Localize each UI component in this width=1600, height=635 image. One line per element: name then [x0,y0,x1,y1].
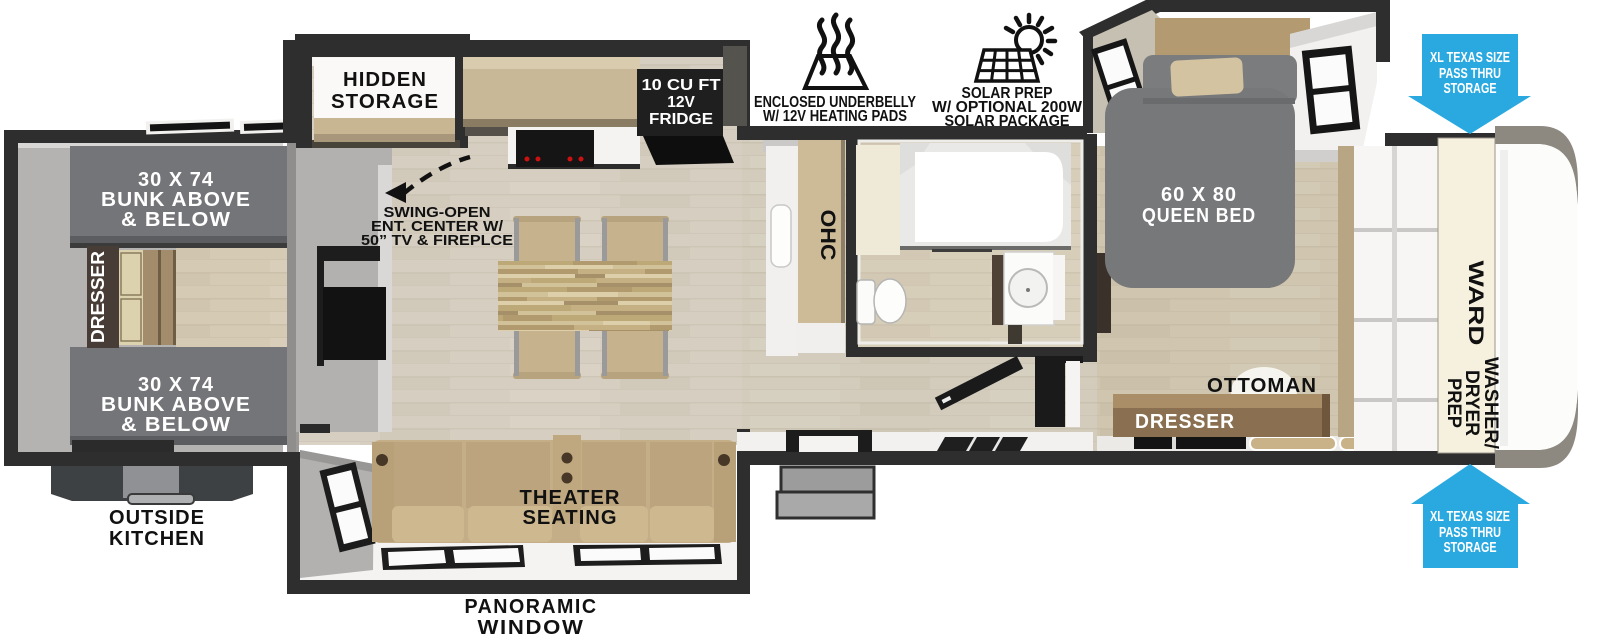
svg-text:30 X 74: 30 X 74 [138,374,214,396]
svg-text:OTTOMAN: OTTOMAN [1207,375,1317,397]
svg-text:OHC: OHC [816,210,839,261]
svg-text:WINDOW: WINDOW [478,617,585,635]
svg-text:10 CU FT: 10 CU FT [642,77,722,94]
svg-text:STORAGE: STORAGE [1444,539,1497,556]
svg-text:W/ 12V HEATING PADS: W/ 12V HEATING PADS [763,108,907,125]
svg-text:DRESSER: DRESSER [1135,411,1235,433]
svg-text:60 X 80: 60 X 80 [1161,184,1237,206]
svg-text:DRESSER: DRESSER [88,251,108,343]
svg-text:& BELOW: & BELOW [121,414,231,436]
svg-text:QUEEN BED: QUEEN BED [1142,205,1256,227]
svg-text:50” TV & FIREPLCE: 50” TV & FIREPLCE [361,232,513,249]
svg-text:SEATING: SEATING [523,507,618,529]
svg-text:12V: 12V [667,94,695,111]
svg-text:FRIDGE: FRIDGE [649,111,713,128]
svg-text:KITCHEN: KITCHEN [109,528,205,550]
svg-text:HIDDEN: HIDDEN [343,69,427,91]
svg-text:STORAGE: STORAGE [1444,80,1497,97]
svg-text:XL TEXAS SIZE: XL TEXAS SIZE [1430,508,1510,525]
svg-text:BUNK ABOVE: BUNK ABOVE [101,189,251,211]
svg-text:30 X 74: 30 X 74 [138,169,214,191]
svg-text:WASHER/: WASHER/ [1480,357,1501,450]
svg-text:THEATER: THEATER [520,487,621,509]
svg-text:BUNK ABOVE: BUNK ABOVE [101,394,251,416]
svg-text:SOLAR PACKAGE: SOLAR PACKAGE [945,113,1070,130]
svg-text:PANORAMIC: PANORAMIC [465,596,598,618]
svg-text:& BELOW: & BELOW [121,209,231,231]
svg-text:STORAGE: STORAGE [331,91,439,113]
svg-text:OUTSIDE: OUTSIDE [109,507,205,529]
svg-text:XL TEXAS SIZE: XL TEXAS SIZE [1430,49,1510,66]
svg-text:WARD: WARD [1464,261,1487,346]
svg-text:PREP: PREP [1443,378,1464,428]
